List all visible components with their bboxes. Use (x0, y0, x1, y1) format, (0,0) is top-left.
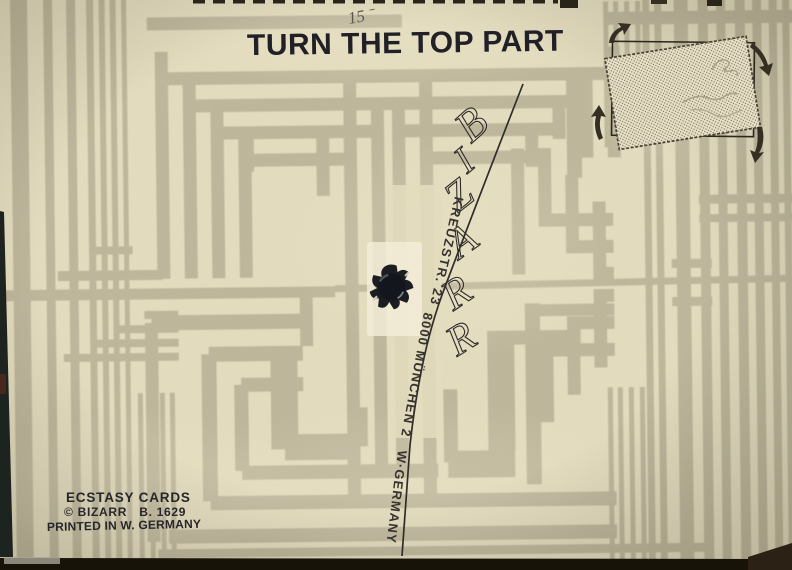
svg-text:ECSTASY CARDS: ECSTASY CARDS (66, 490, 191, 505)
svg-text:TURN THE TOP PART: TURN THE TOP PART (247, 25, 564, 62)
